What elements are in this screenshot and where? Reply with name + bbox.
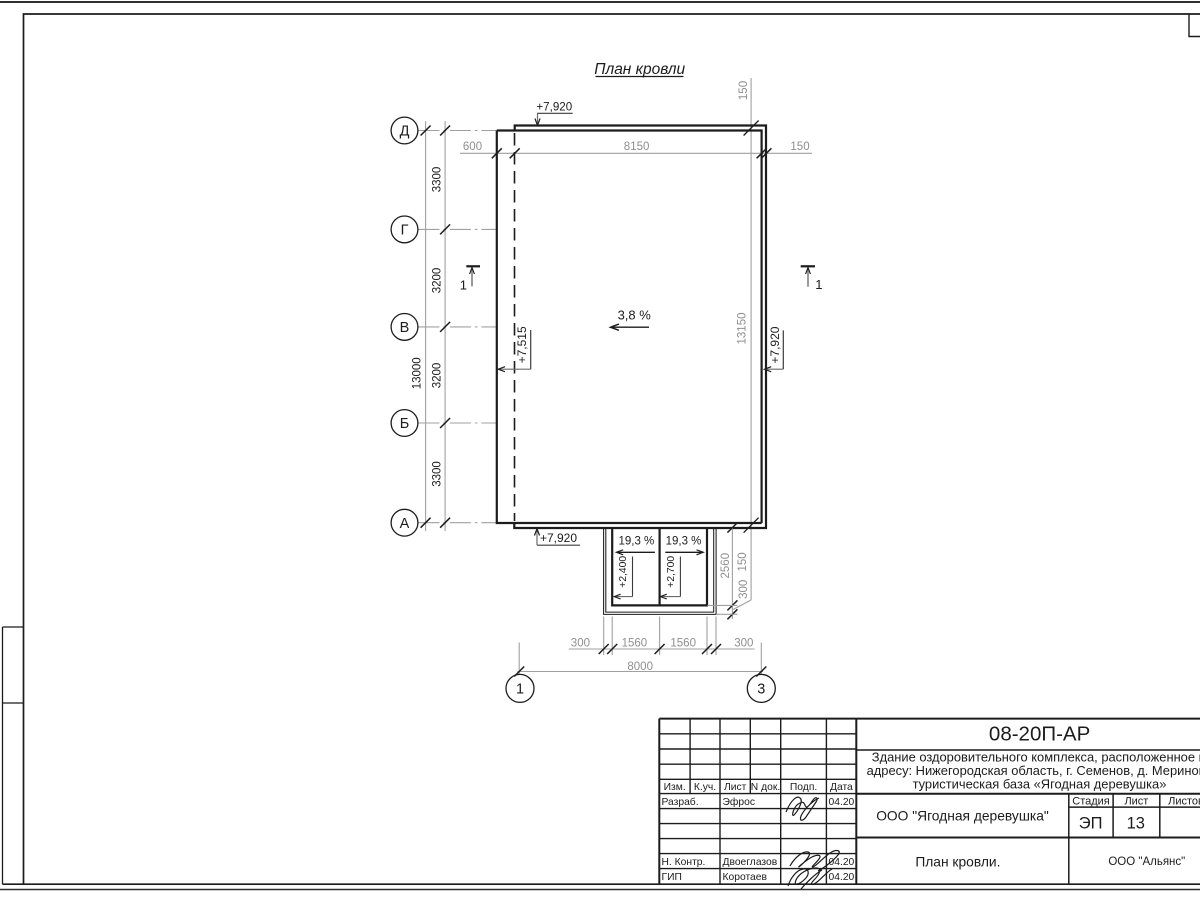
svg-text:+7,920: +7,920 [540, 531, 577, 545]
svg-text:Подп.: Подп. [790, 782, 817, 793]
svg-text:+2,700: +2,700 [666, 556, 677, 588]
svg-text:3300: 3300 [432, 167, 444, 193]
svg-text:Д: Д [400, 124, 410, 140]
svg-text:Дата: Дата [830, 782, 853, 793]
svg-text:1560: 1560 [622, 637, 648, 649]
svg-text:150: 150 [738, 81, 750, 100]
svg-text:3200: 3200 [432, 363, 444, 389]
svg-text:300: 300 [738, 580, 750, 599]
svg-text:300: 300 [571, 637, 590, 649]
svg-text:N док.: N док. [751, 782, 780, 793]
svg-text:Коротаев: Коротаев [723, 872, 768, 883]
svg-text:План кровли: План кровли [594, 61, 685, 78]
svg-text:04.20: 04.20 [829, 797, 855, 808]
svg-text:3: 3 [757, 682, 765, 698]
svg-text:1: 1 [815, 277, 822, 292]
svg-text:300: 300 [734, 637, 753, 649]
svg-text:Эфрос: Эфрос [723, 796, 755, 808]
svg-text:Стадия: Стадия [1072, 795, 1110, 807]
svg-text:600: 600 [463, 141, 482, 153]
svg-text:Г: Г [401, 223, 409, 239]
svg-text:+7,515: +7,515 [515, 326, 529, 363]
svg-text:Н. Контр.: Н. Контр. [662, 857, 706, 868]
svg-text:19,3 %: 19,3 % [618, 535, 654, 547]
svg-text:ООО "Ягодная деревушка": ООО "Ягодная деревушка" [876, 808, 1049, 823]
svg-text:19,3 %: 19,3 % [666, 535, 702, 547]
svg-text:1560: 1560 [670, 637, 696, 649]
svg-text:1: 1 [516, 682, 524, 698]
svg-text:08-20П-АР: 08-20П-АР [989, 723, 1090, 746]
svg-text:К.уч.: К.уч. [694, 782, 716, 793]
svg-text:Листов: Листов [1168, 795, 1200, 807]
svg-text:8150: 8150 [624, 141, 650, 153]
svg-text:04.20: 04.20 [829, 857, 855, 868]
svg-text:+7,920: +7,920 [536, 100, 572, 113]
svg-text:+7,920: +7,920 [768, 326, 782, 363]
svg-text:Лист: Лист [1124, 795, 1148, 807]
svg-text:1: 1 [460, 277, 467, 292]
svg-text:150: 150 [790, 141, 809, 153]
svg-text:Б: Б [400, 416, 410, 432]
svg-text:ГИП: ГИП [662, 872, 682, 883]
svg-text:ЭП: ЭП [1079, 814, 1103, 832]
svg-text:13000: 13000 [412, 357, 424, 389]
svg-text:3300: 3300 [432, 461, 444, 487]
svg-text:+2,400: +2,400 [618, 556, 629, 588]
svg-text:13: 13 [1127, 814, 1145, 832]
svg-text:Изм.: Изм. [664, 782, 686, 793]
svg-text:04.20: 04.20 [829, 872, 855, 883]
svg-text:туристическая база «Ягодная де: туристическая база «Ягодная деревушка» [913, 777, 1167, 792]
svg-text:2560: 2560 [720, 553, 732, 579]
svg-text:Лист: Лист [724, 782, 747, 793]
svg-text:Разраб.: Разраб. [662, 796, 699, 808]
svg-text:В: В [400, 320, 410, 336]
svg-text:ООО "Альянс": ООО "Альянс" [1108, 856, 1185, 868]
svg-text:8000: 8000 [627, 661, 653, 673]
svg-text:План кровли.: План кровли. [915, 855, 1000, 870]
svg-text:150: 150 [737, 552, 749, 571]
svg-text:3,8 %: 3,8 % [618, 308, 652, 323]
svg-text:13150: 13150 [737, 313, 749, 345]
svg-text:А: А [400, 516, 410, 532]
svg-text:3200: 3200 [432, 268, 444, 294]
svg-text:Двоеглазов: Двоеглазов [723, 857, 778, 868]
